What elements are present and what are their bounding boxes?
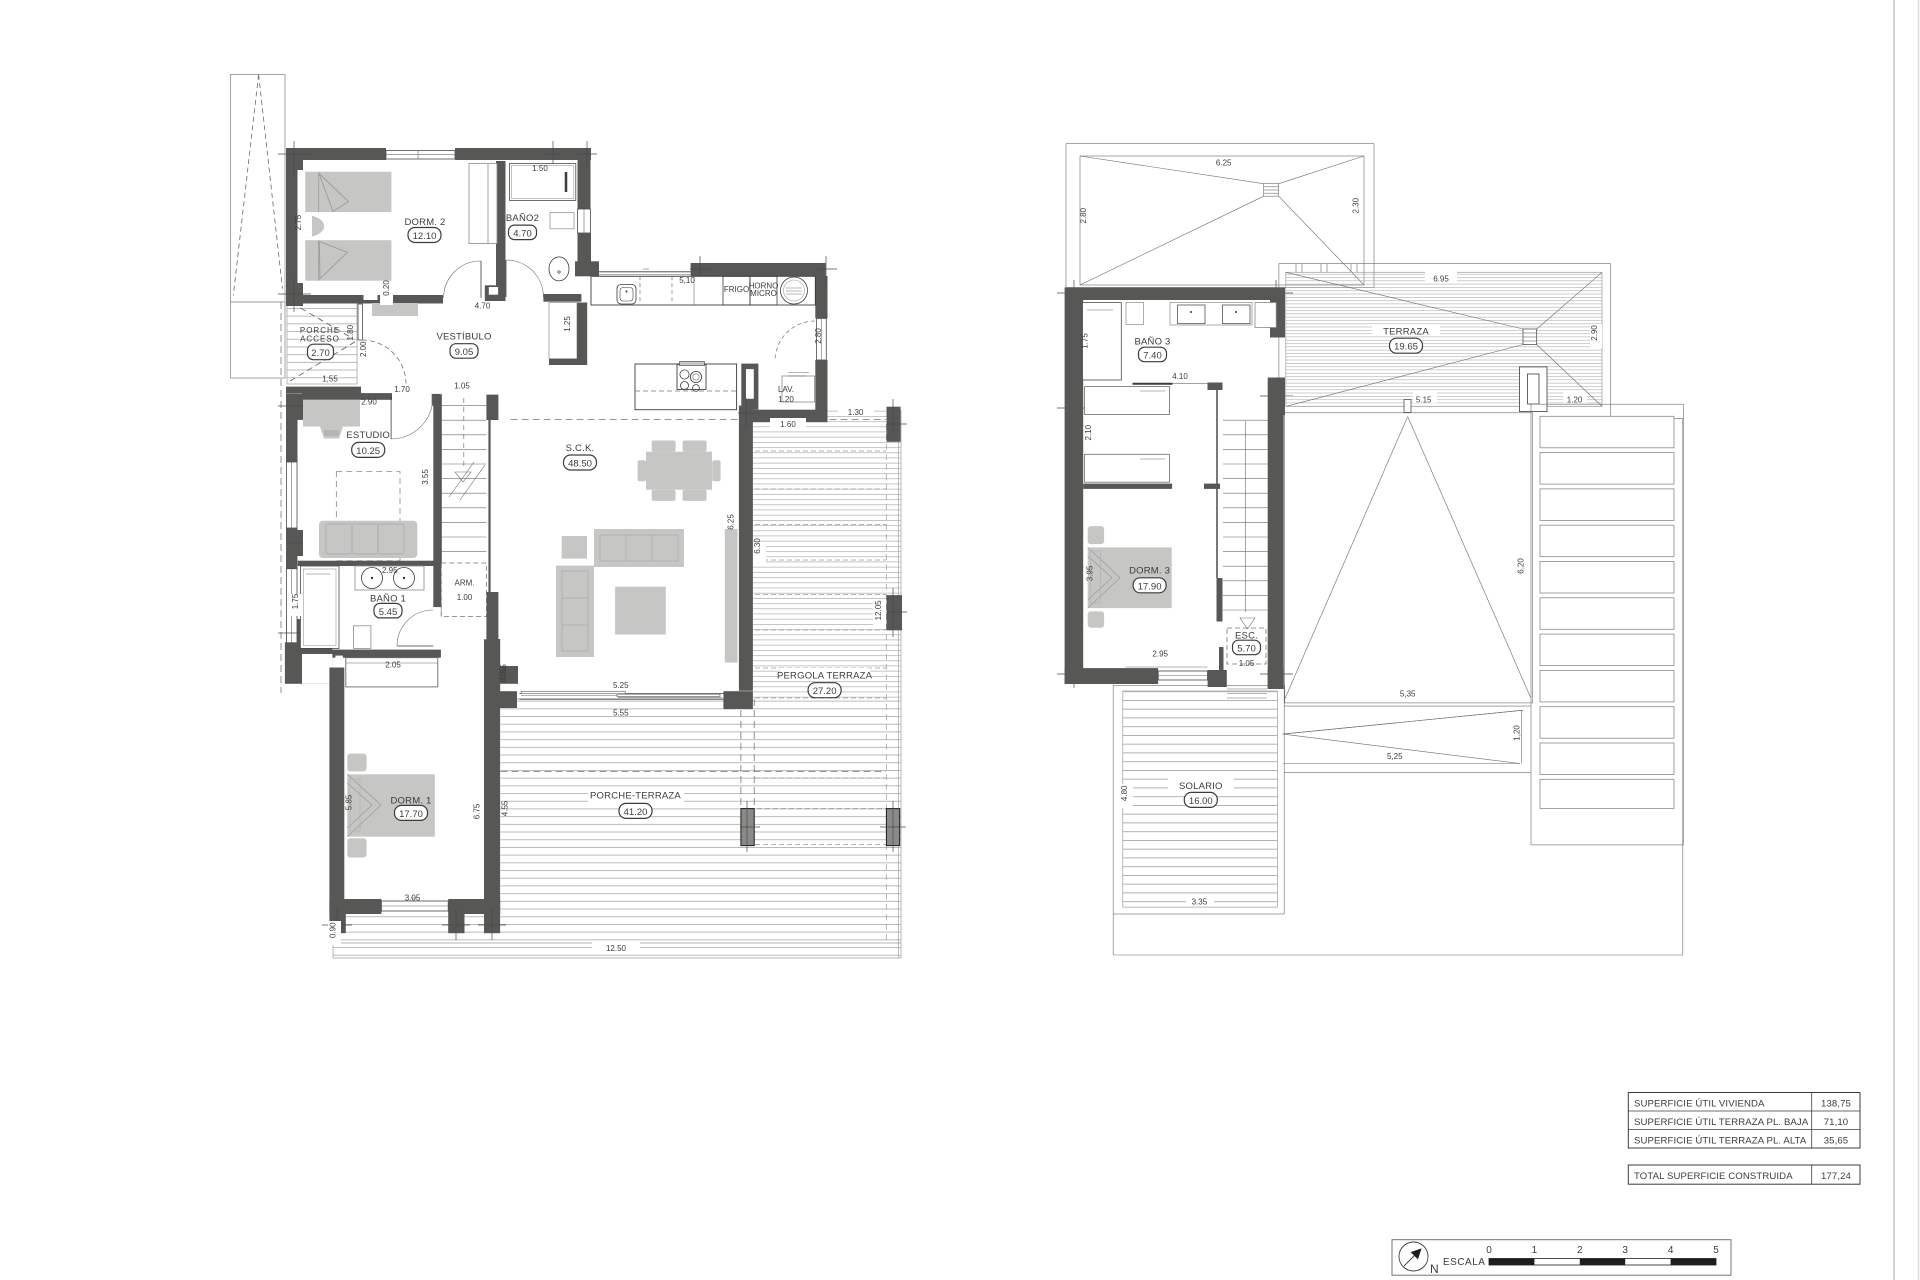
svg-text:10.25: 10.25: [356, 446, 380, 457]
svg-text:177,24: 177,24: [1821, 1171, 1852, 1182]
svg-text:2.90: 2.90: [1590, 325, 1599, 341]
svg-text:3.95: 3.95: [1086, 565, 1095, 581]
svg-text:12.10: 12.10: [413, 231, 437, 242]
svg-text:6.25: 6.25: [1216, 159, 1232, 168]
svg-text:5.85: 5.85: [345, 794, 354, 810]
svg-text:5.55: 5.55: [613, 708, 629, 717]
svg-text:2.80: 2.80: [1079, 207, 1088, 223]
svg-text:1.50: 1.50: [532, 164, 548, 173]
svg-text:0.90: 0.90: [328, 922, 337, 938]
svg-text:1.75: 1.75: [1081, 333, 1090, 349]
svg-text:2.75: 2.75: [294, 214, 303, 230]
svg-text:PERGOLA TERRAZA: PERGOLA TERRAZA: [777, 671, 873, 682]
svg-text:5,25: 5,25: [1387, 752, 1403, 761]
svg-text:1.70: 1.70: [394, 385, 410, 394]
svg-text:3.35: 3.35: [1192, 898, 1208, 907]
svg-text:2.95: 2.95: [382, 566, 398, 575]
svg-text:SUPERFICIE ÚTIL VIVIENDA: SUPERFICIE ÚTIL VIVIENDA: [1634, 1099, 1765, 1110]
svg-text:3: 3: [1622, 1245, 1628, 1256]
svg-text:TOTAL SUPERFICIE CONSTRUIDA: TOTAL SUPERFICIE CONSTRUIDA: [1634, 1171, 1793, 1182]
svg-text:PORCHE-TERRAZA: PORCHE-TERRAZA: [590, 791, 681, 802]
svg-text:4.10: 4.10: [1172, 372, 1188, 381]
svg-text:1.30: 1.30: [848, 408, 864, 417]
svg-text:1.20: 1.20: [1567, 396, 1583, 405]
svg-text:1.05: 1.05: [454, 382, 470, 391]
svg-text:ESTUDIO: ESTUDIO: [346, 430, 390, 441]
svg-text:2.95: 2.95: [1152, 650, 1168, 659]
svg-text:LAV.: LAV.: [778, 385, 794, 394]
svg-text:6.75: 6.75: [472, 803, 481, 819]
svg-text:4.55: 4.55: [501, 800, 510, 816]
svg-text:1,55: 1,55: [322, 375, 338, 384]
svg-text:1.00: 1.00: [457, 593, 473, 602]
svg-text:6.25: 6.25: [726, 514, 735, 530]
svg-text:1.80: 1.80: [346, 324, 355, 340]
svg-text:DORM. 3: DORM. 3: [1129, 565, 1170, 576]
svg-text:2.70: 2.70: [311, 348, 330, 359]
svg-text:S.C.K.: S.C.K.: [566, 443, 595, 454]
svg-text:71,10: 71,10: [1824, 1117, 1849, 1128]
svg-text:48.50: 48.50: [568, 459, 592, 470]
svg-text:MICRO: MICRO: [750, 289, 777, 298]
svg-text:1.20: 1.20: [778, 395, 794, 404]
svg-text:2.00: 2.00: [359, 341, 368, 357]
svg-text:1.25: 1.25: [563, 316, 572, 332]
svg-text:2: 2: [1577, 1245, 1583, 1256]
svg-text:5.45: 5.45: [379, 607, 398, 618]
svg-text:7.40: 7.40: [1143, 351, 1162, 362]
svg-text:ARM.: ARM.: [455, 579, 475, 588]
svg-text:FRIGO: FRIGO: [724, 285, 749, 294]
svg-text:5.70: 5.70: [1237, 644, 1256, 655]
svg-text:6.30: 6.30: [753, 538, 762, 554]
svg-text:VESTÍBULO: VESTÍBULO: [436, 332, 491, 343]
svg-text:12.50: 12.50: [606, 944, 627, 953]
svg-text:SUPERFICIE ÚTIL TERRAZA PL. AL: SUPERFICIE ÚTIL TERRAZA PL. ALTA: [1634, 1136, 1807, 1147]
svg-text:TERRAZA: TERRAZA: [1383, 327, 1429, 338]
svg-text:4: 4: [1668, 1245, 1674, 1256]
svg-text:17.90: 17.90: [1138, 581, 1162, 592]
svg-text:5,10: 5,10: [679, 276, 695, 285]
svg-text:1.75: 1.75: [291, 593, 300, 609]
svg-text:SOLARIO: SOLARIO: [1179, 781, 1223, 792]
svg-text:3.55: 3.55: [421, 469, 430, 485]
svg-text:BAÑO 3: BAÑO 3: [1134, 337, 1170, 348]
svg-text:DORM. 2: DORM. 2: [405, 217, 446, 228]
svg-text:4.80: 4.80: [1120, 785, 1129, 801]
svg-text:1.60: 1.60: [780, 420, 796, 429]
svg-text:N: N: [1430, 1262, 1439, 1276]
svg-text:1: 1: [1532, 1245, 1538, 1256]
svg-text:17.70: 17.70: [399, 809, 423, 820]
svg-text:16.00: 16.00: [1189, 796, 1213, 807]
svg-text:0.55: 0.55: [499, 664, 508, 680]
svg-text:2.30: 2.30: [1352, 197, 1361, 213]
svg-text:5: 5: [1713, 1245, 1719, 1256]
svg-text:5,35: 5,35: [1400, 690, 1416, 699]
svg-text:ACCESO: ACCESO: [300, 335, 340, 344]
svg-text:2.10: 2.10: [1084, 424, 1093, 440]
svg-text:19.65: 19.65: [1394, 342, 1418, 353]
svg-text:6.95: 6.95: [1433, 275, 1449, 284]
svg-text:27.20: 27.20: [813, 686, 837, 697]
svg-text:5.25: 5.25: [613, 681, 629, 690]
svg-text:1.05: 1.05: [1239, 659, 1255, 668]
svg-text:138,75: 138,75: [1821, 1099, 1851, 1110]
svg-text:5.15: 5.15: [1416, 396, 1432, 405]
svg-text:SUPERFICIE ÚTIL TERRAZA PL. BA: SUPERFICIE ÚTIL TERRAZA PL. BAJA: [1634, 1117, 1809, 1128]
svg-text:2.80: 2.80: [814, 328, 823, 344]
svg-text:1,20: 1,20: [1513, 725, 1522, 741]
svg-text:2.90: 2.90: [361, 398, 377, 407]
svg-text:4.70: 4.70: [513, 229, 532, 240]
svg-text:ESCALA :: ESCALA :: [1443, 1257, 1491, 1268]
svg-text:0: 0: [1486, 1245, 1492, 1256]
svg-text:3.05: 3.05: [405, 894, 421, 903]
svg-text:41.20: 41.20: [624, 807, 648, 818]
svg-text:BAÑO2: BAÑO2: [506, 213, 539, 224]
svg-text:9.05: 9.05: [455, 347, 474, 358]
svg-text:0.20: 0.20: [382, 280, 391, 296]
svg-text:12.05: 12.05: [874, 600, 883, 621]
svg-text:2.05: 2.05: [385, 660, 401, 669]
svg-text:4.70: 4.70: [475, 302, 491, 311]
svg-text:35,65: 35,65: [1824, 1136, 1849, 1147]
svg-text:6.20: 6.20: [1516, 558, 1525, 574]
